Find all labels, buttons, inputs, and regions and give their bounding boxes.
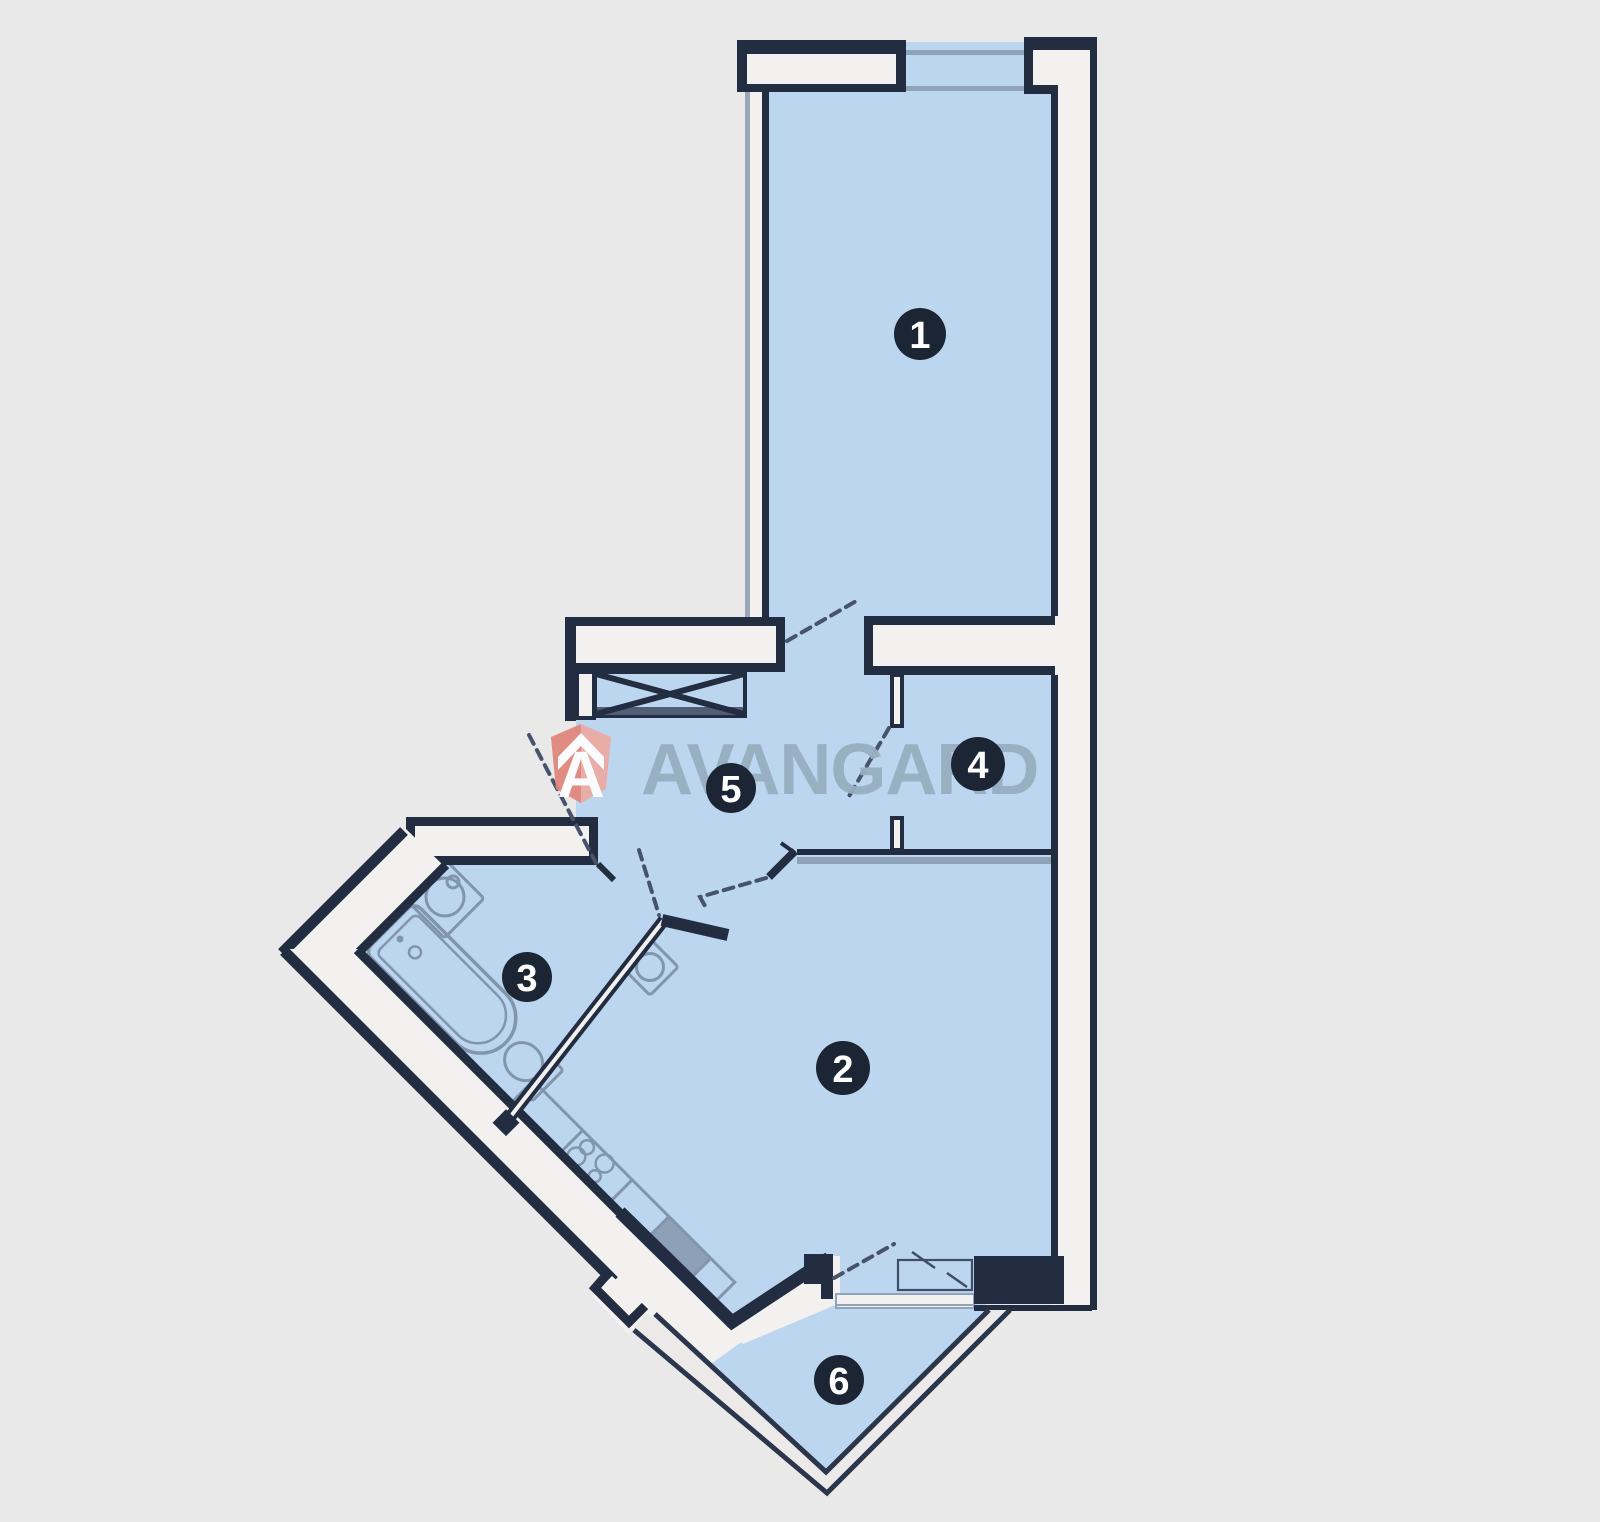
svg-text:3: 3 xyxy=(516,958,537,1000)
svg-text:5: 5 xyxy=(720,769,741,811)
svg-text:4: 4 xyxy=(967,745,988,787)
svg-text:1: 1 xyxy=(909,315,930,357)
svg-text:6: 6 xyxy=(828,1361,849,1403)
svg-text:2: 2 xyxy=(832,1049,853,1091)
svg-text:A: A xyxy=(557,737,605,811)
